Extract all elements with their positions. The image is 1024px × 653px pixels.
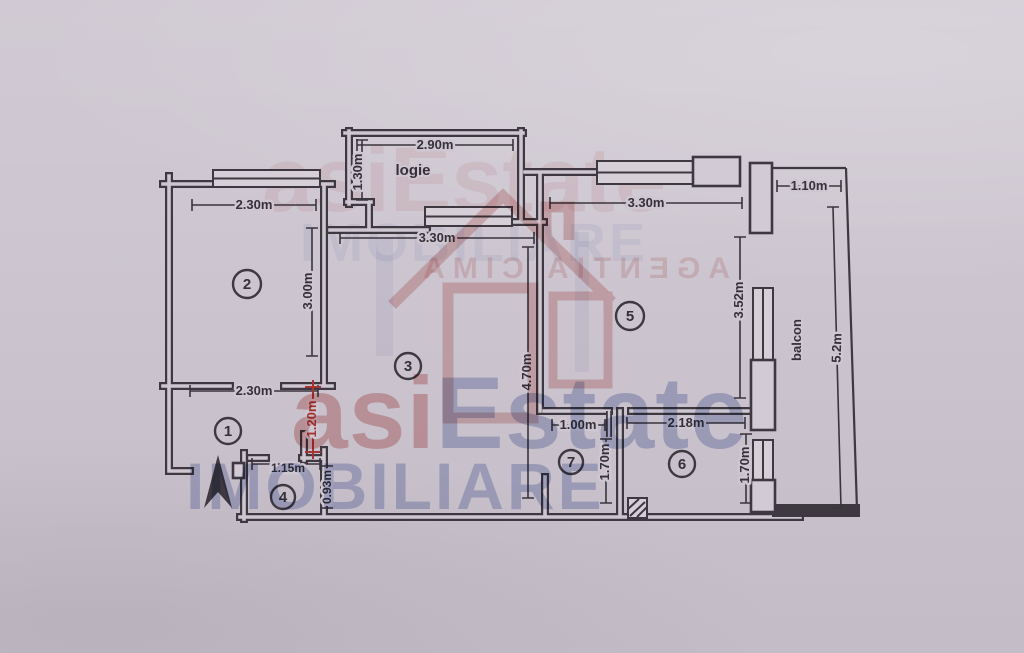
room-5-number: 5 [626,308,634,325]
windows [213,161,773,482]
dim-balcony-length: 5.2m [828,333,844,363]
shaft-hatch [628,498,647,518]
room-2-number: 2 [243,276,251,293]
dim-room3-width: 3.30m [419,230,456,245]
balcony-bottom-wall [772,504,860,517]
room-1-number: 1 [224,423,232,440]
room-7-number: 7 [567,454,575,471]
scanned-floor-plan-photo: asiEstate IMOBILIARE [0,0,1024,653]
dim-room2-width: 2.30m [236,197,273,212]
dim-hall-opening: 1.20m [304,401,319,438]
room-4-number: 4 [279,489,288,506]
dim-room7-depth: 1.70m [597,444,612,481]
dim-balcony-top: 1.10m [791,178,828,193]
dim-room7-width: 1.00m [560,417,597,432]
floor-plan-drawing: 2.90m 1.30m logie 2.30m 3.00m 2.30m 1.20… [0,0,1024,653]
room-6-number: 6 [678,456,686,473]
dim-room6-depth: 1.70m [737,447,752,484]
dim-logie-depth: 1.30m [350,154,365,191]
north-arrow-icon [204,455,232,508]
loggia-label: logie [395,162,430,179]
dim-room5-depth: 3.52m [731,282,746,319]
dim-room4-depth: 0.93m [320,470,334,504]
dim-room5-width: 3.30m [628,195,665,210]
dim-room2-depth: 3.00m [300,273,315,310]
walls-outer [163,131,800,519]
balcony-label: balcon [789,319,804,361]
dim-room1-width: 2.30m [236,383,273,398]
dim-room3-depth: 4.70m [519,354,534,391]
dim-room6-width: 2.18m [668,415,705,430]
dim-room4-width: 1.15m [271,461,305,475]
dim-logie-width: 2.90m [417,137,454,152]
room-3-number: 3 [404,358,412,375]
